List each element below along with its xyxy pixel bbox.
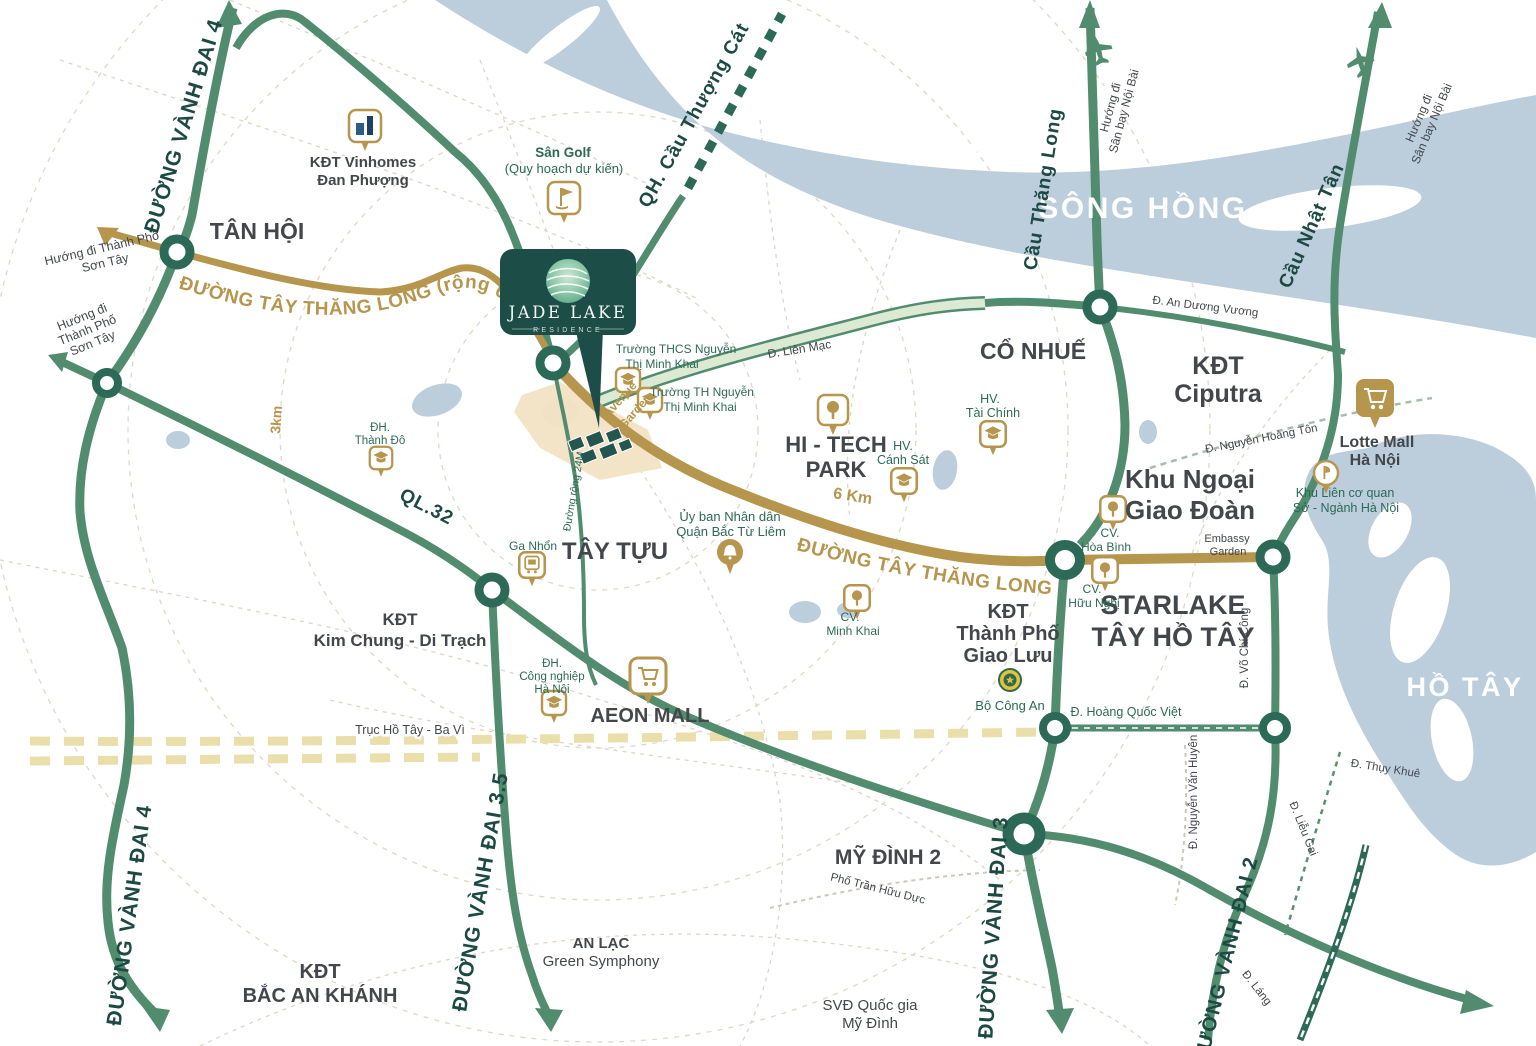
svg-text:Khu Ngoại: Khu Ngoại [1125, 464, 1255, 494]
svg-text:Cánh Sát: Cánh Sát [877, 453, 930, 467]
project-subtitle: RESIDENCE [533, 327, 603, 334]
area-bac-an-khanh: KĐT BẮC AN KHÁNH [243, 961, 398, 1007]
area-tan-hoi: TÂN HỘI [210, 217, 305, 244]
road-label-vanh-dai-4-top: ĐƯỜNG VÀNH ĐAI 4 [139, 16, 227, 236]
svg-text:Hòa Bình: Hòa Bình [1081, 540, 1131, 554]
poi-label-cv-minh-khai: CV. Minh Khai [826, 610, 879, 638]
svg-text:CV.: CV. [841, 610, 860, 624]
area-kim-chung: KĐT Kim Chung - Di Trạch [314, 610, 487, 650]
svg-text:Đan Phượng: Đan Phượng [317, 172, 409, 189]
poi-uy-ban [717, 539, 743, 574]
svg-text:KĐT: KĐT [1192, 352, 1243, 380]
road-vo-chi-cong [1273, 557, 1276, 728]
road-label-hoang-quoc-viet: Đ. Hoàng Quốc Việt [1071, 705, 1182, 719]
svg-text:Khu Liên cơ quan: Khu Liên cơ quan [1296, 486, 1395, 500]
poi-label-khu-lien: Khu Liên cơ quan Sở - Ngành Hà Nội [1293, 486, 1399, 515]
svg-text:PARK: PARK [806, 457, 867, 482]
poi-lotte-mall [1356, 379, 1394, 428]
svg-text:Sân Golf: Sân Golf [535, 145, 591, 160]
road-label-tay-thang-long: ĐƯỜNG TÂY THĂNG LONG [795, 535, 1053, 600]
lake-label: HỒ TÂY [1406, 671, 1523, 702]
svg-text:CV.: CV. [1101, 526, 1120, 540]
svg-text:Trường TH Nguyễn: Trường TH Nguyễn [650, 384, 754, 399]
svg-text:AN LẠC: AN LẠC [573, 935, 630, 952]
river-label: SÔNG HỒNG [1038, 191, 1247, 225]
svg-text:Ủy ban Nhân dân: Ủy ban Nhân dân [679, 509, 780, 524]
svg-text:Embassy: Embassy [1204, 533, 1250, 545]
svg-text:Lotte Mall: Lotte Mall [1340, 434, 1415, 451]
svg-text:Minh Khai: Minh Khai [826, 624, 879, 638]
road-label-ql32: QL.32 [396, 485, 457, 530]
svg-text:Ciputra: Ciputra [1174, 380, 1263, 408]
poi-label-dh-cong-nghiep: ĐH. Công nghiệp Hà Nội [519, 658, 584, 696]
svg-text:Công nghiệp: Công nghiệp [519, 671, 584, 683]
svg-text:KĐT Vinhomes: KĐT Vinhomes [310, 154, 416, 171]
svg-text:Green Symphony: Green Symphony [543, 953, 660, 970]
road-vanh-dai-3-south [1024, 834, 1060, 1018]
poi-label-aeon: AEON MALL [591, 705, 710, 727]
road-label-lang: Đ. Láng [1239, 969, 1273, 1008]
poi-label-san-golf: Sân Golf (Quy hoạch dự kiến) [505, 145, 624, 176]
svg-text:Trường THCS Nguyễn: Trường THCS Nguyễn [616, 341, 737, 356]
distance-label-3km: 3km [267, 405, 285, 434]
svg-text:SVĐ Quốc gia: SVĐ Quốc gia [822, 997, 918, 1014]
svg-text:HI - TECH: HI - TECH [785, 432, 886, 457]
area-my-dinh-2: MỸ ĐÌNH 2 [835, 846, 941, 869]
svg-text:KĐT: KĐT [987, 601, 1028, 623]
poi-hv-canh-sat [891, 468, 917, 502]
area-ciputra: KĐT Ciputra [1174, 352, 1263, 408]
poi-hitech-park [818, 395, 848, 435]
svg-text:KĐT: KĐT [299, 961, 340, 983]
svg-text:Hữu Nghị: Hữu Nghị [1068, 596, 1119, 610]
svg-text:TÂY HỒ TÂY: TÂY HỒ TÂY [1091, 621, 1254, 652]
direction-son-tay-b: Hướng đi Thành Phố Sơn Tây [51, 299, 123, 361]
distance-label-6km: 6 Km [832, 485, 873, 508]
area-co-nhue: CỔ NHUẾ [980, 337, 1086, 364]
area-an-lac: AN LẠC Green Symphony [543, 935, 660, 970]
svg-text:ĐH.: ĐH. [542, 658, 562, 670]
svg-text:Thị Minh Khai: Thị Minh Khai [663, 400, 736, 414]
poi-label-vinhomes: KĐT Vinhomes Đan Phượng [310, 154, 416, 189]
road-nguyen-van-huyen [1175, 745, 1186, 905]
svg-text:(Quy hoạch dự kiến): (Quy hoạch dự kiến) [505, 161, 624, 176]
poi-label-cv-huu-nghi: CV. Hữu Nghị [1068, 582, 1119, 610]
svg-text:Thành Đô: Thành Đô [355, 435, 406, 447]
svg-text:ĐH.: ĐH. [370, 422, 390, 434]
area-tay-tuu: TÂY TỰU [562, 537, 668, 565]
poi-vinhomes [349, 110, 381, 151]
svg-text:KĐT: KĐT [383, 610, 419, 629]
svg-text:Mỹ Đình: Mỹ Đình [842, 1015, 898, 1032]
svg-text:STARLAKE: STARLAKE [1101, 590, 1246, 620]
project-name: JADE LAKE [507, 303, 628, 322]
poi-dh-thanh-do [370, 447, 393, 477]
area-embassy-garden: Embassy Garden [1204, 533, 1250, 558]
svg-text:HV.: HV. [980, 392, 1000, 406]
poi-label-dh-thanh-do: ĐH. Thành Đô [355, 422, 406, 447]
svg-text:BẮC AN KHÁNH: BẮC AN KHÁNH [243, 983, 398, 1007]
svg-text:CV.: CV. [1083, 582, 1102, 596]
location-map: SÔNG HỒNG HỒ TÂY ĐƯỜNG VÀNH ĐAI 4 ĐƯỜNG … [0, 0, 1536, 1046]
svg-text:Thành Phố: Thành Phố [956, 623, 1059, 645]
road-label-lieu-gai: Đ. Liễu Gai [1286, 800, 1320, 858]
svg-text:Thị Minh Khai: Thị Minh Khai [625, 357, 698, 371]
area-giao-luu: KĐT Thành Phố Giao Lưu [956, 601, 1059, 667]
svg-text:Hà Nội: Hà Nội [1350, 452, 1401, 469]
poi-label-uy-ban: Ủy ban Nhân dân Quận Bắc Từ Liêm [676, 509, 786, 539]
road-label-vanh-dai-35: ĐƯỜNG VÀNH ĐAI 3.5 [447, 770, 513, 1013]
road-label-nguyen-van-huyen: Đ. Nguyễn Văn Huyên [1187, 735, 1200, 849]
road-truc-ho-tay-ba-vi [30, 732, 1045, 761]
svg-text:Quận Bắc Từ Liêm: Quận Bắc Từ Liêm [676, 524, 786, 539]
poi-label-hv-tai-chinh: HV. Tài Chính [966, 392, 1020, 420]
road-vanh-dai-4 [80, 8, 233, 1016]
poi-label-bo-cong-an: Bộ Công An [975, 698, 1044, 713]
svg-text:Hà Nội: Hà Nội [534, 684, 569, 696]
poi-label-ga-nhon: Ga Nhổn [509, 539, 557, 553]
svg-text:Sở - Ngành Hà Nội: Sở - Ngành Hà Nội [1293, 501, 1399, 515]
area-khu-ngoai-giao: Khu Ngoại Giao Đoàn [1125, 464, 1255, 525]
svg-text:HV.: HV. [893, 439, 913, 453]
road-label-vanh-dai-3: ĐƯỜNG VÀNH ĐAI 3 [973, 816, 1012, 1040]
poi-bo-cong-an [999, 669, 1021, 691]
svg-text:Giao Lưu: Giao Lưu [964, 645, 1053, 667]
road-label-truc-ho-tay: Trục Hồ Tây - Ba Vì [355, 723, 465, 737]
jade-lake-logo [546, 259, 590, 303]
poi-hv-tai-chinh [980, 421, 1006, 455]
road-label-nguyen-hoang-ton: Đ. Nguyễn Hoàng Tôn [1204, 421, 1319, 456]
poi-ga-nhon [519, 552, 545, 586]
poi-label-hitech: HI - TECH PARK [785, 432, 886, 482]
svg-text:Tài Chính: Tài Chính [966, 406, 1020, 420]
svg-text:Giao Đoàn: Giao Đoàn [1125, 495, 1255, 525]
road-vanh-dai-3-mid [1024, 560, 1065, 834]
road-label-duong-rong-24m: Đường rộng 24M [561, 451, 587, 532]
road-label-tran-huu-duc: Phố Trần Hữu Dực [829, 872, 926, 907]
svg-text:Garden: Garden [1210, 546, 1247, 558]
poi-san-golf [548, 182, 580, 223]
area-svd-my-dinh: SVĐ Quốc gia Mỹ Đình [822, 997, 918, 1032]
poi-label-th: Trường TH Nguyễn Thị Minh Khai [650, 384, 754, 414]
poi-aeon-mall [630, 658, 666, 704]
svg-text:Kim Chung - Di Trạch: Kim Chung - Di Trạch [314, 631, 487, 650]
